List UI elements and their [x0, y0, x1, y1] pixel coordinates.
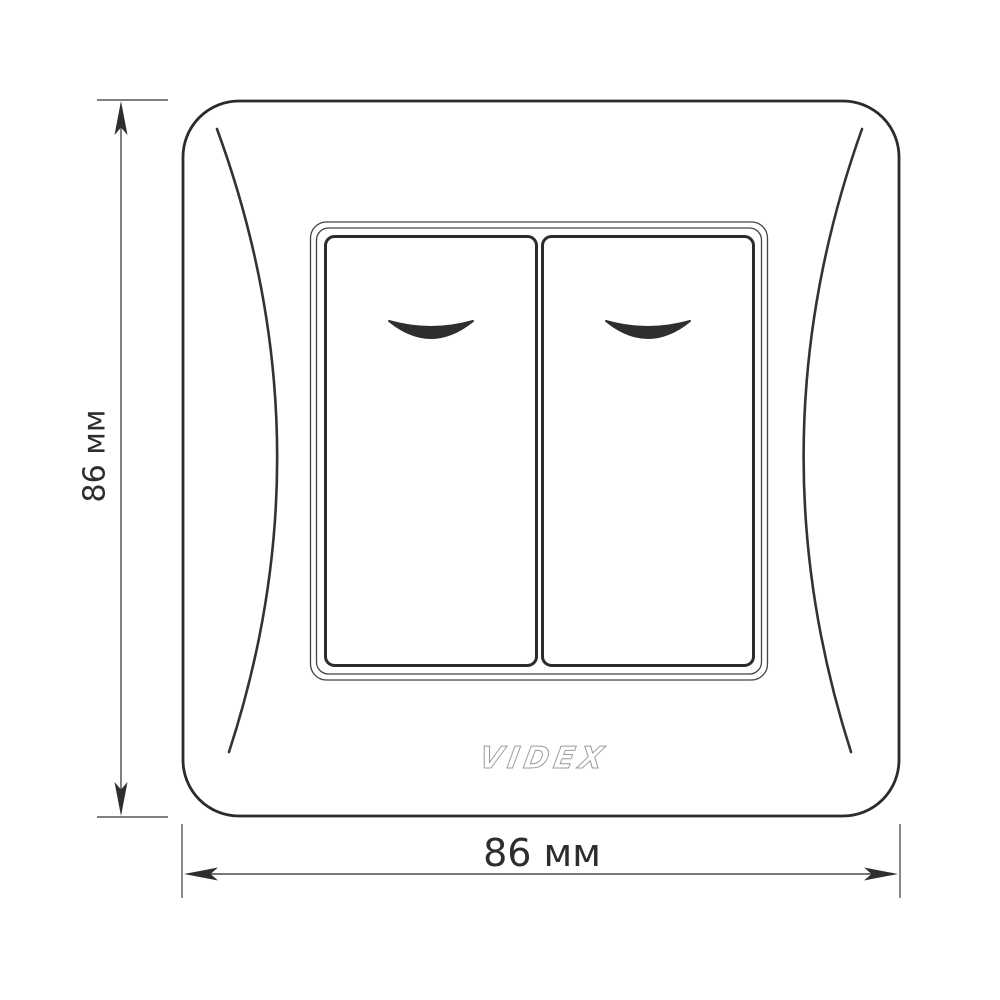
left-rocker-button[interactable] [326, 237, 537, 666]
videx-logo: VIDEX [477, 741, 611, 776]
diagram-canvas: VIDEX 86 мм 86 мм [0, 0, 1000, 1000]
height-dimension-label: 86 мм [78, 410, 113, 503]
right-rocker-button[interactable] [543, 237, 754, 666]
product-dimension-diagram: VIDEX 86 мм 86 мм [0, 0, 1000, 1000]
width-dimension-label: 86 мм [483, 831, 601, 875]
